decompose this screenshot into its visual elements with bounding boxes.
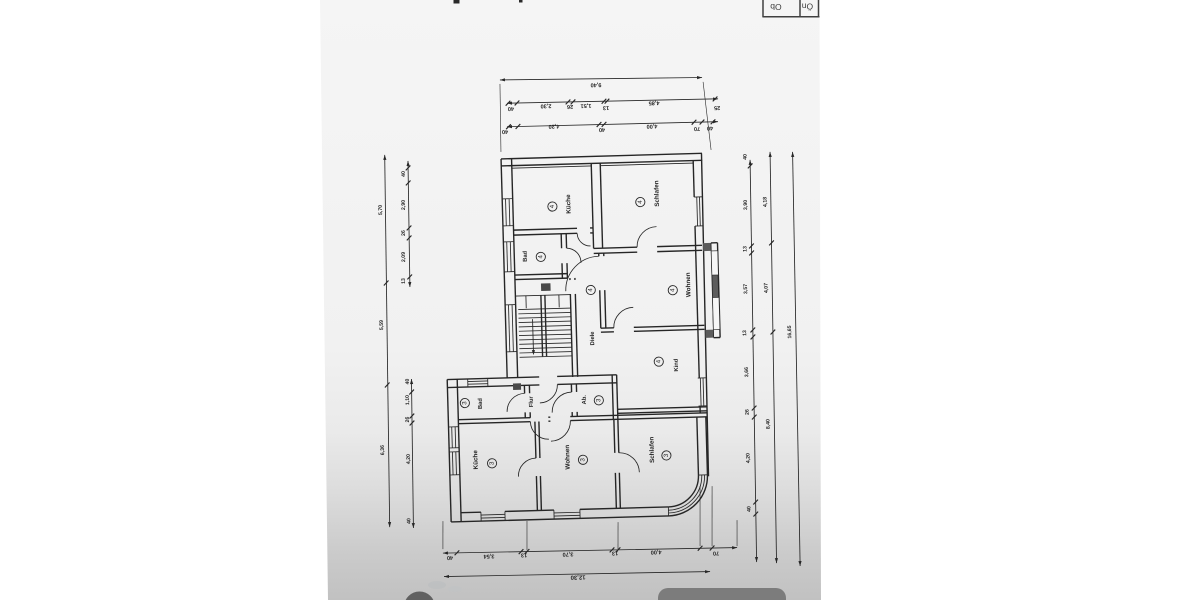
svg-text:Küche: Küche <box>472 450 480 470</box>
svg-text:4,20: 4,20 <box>745 453 751 463</box>
svg-text:5,59: 5,59 <box>379 320 385 330</box>
svg-text:2,90: 2,90 <box>401 200 407 210</box>
svg-text:4,18: 4,18 <box>762 197 768 207</box>
svg-text:40: 40 <box>401 171 407 177</box>
svg-text:13: 13 <box>401 278 407 284</box>
svg-text:13: 13 <box>612 550 618 556</box>
svg-text:13: 13 <box>742 330 748 336</box>
svg-text:8,40: 8,40 <box>765 419 771 429</box>
svg-text:16,65: 16,65 <box>787 325 793 338</box>
svg-text:Ab.: Ab. <box>582 395 588 405</box>
svg-text:40: 40 <box>447 554 453 560</box>
svg-text:Bad: Bad <box>523 250 529 262</box>
svg-text:4,85: 4,85 <box>649 99 660 105</box>
svg-text:Diele: Diele <box>590 331 596 346</box>
svg-text:40: 40 <box>746 506 752 512</box>
svg-text:26: 26 <box>567 103 573 109</box>
svg-text:70: 70 <box>713 550 719 556</box>
svg-text:Küche: Küche <box>565 194 573 214</box>
svg-text:Ön: Ön <box>802 2 814 12</box>
svg-text:4,07: 4,07 <box>763 283 769 293</box>
svg-text:Schlafen: Schlafen <box>653 180 661 207</box>
svg-text:26: 26 <box>405 416 411 422</box>
svg-text:4,00: 4,00 <box>651 548 662 554</box>
svg-text:6,36: 6,36 <box>380 445 386 455</box>
svg-text:26: 26 <box>401 230 407 236</box>
svg-text:40: 40 <box>405 378 411 384</box>
svg-text:2,09: 2,09 <box>401 252 407 262</box>
svg-text:4,00: 4,00 <box>646 123 657 129</box>
svg-text:3,70: 3,70 <box>562 550 573 556</box>
svg-text:Ob: Ob <box>770 2 782 12</box>
svg-text:26: 26 <box>745 409 751 415</box>
svg-text:40: 40 <box>406 518 412 524</box>
svg-text:12,30: 12,30 <box>570 573 586 579</box>
svg-text:40: 40 <box>743 154 749 160</box>
svg-text:13: 13 <box>742 246 748 252</box>
svg-text:40: 40 <box>599 126 605 132</box>
svg-text:9,40: 9,40 <box>590 81 601 87</box>
svg-text:3,54: 3,54 <box>483 552 495 558</box>
svg-text:Wohnen: Wohnen <box>685 272 693 297</box>
svg-text:Wohnen: Wohnen <box>564 445 572 470</box>
svg-text:3,66: 3,66 <box>744 367 750 377</box>
svg-text:40: 40 <box>508 105 514 111</box>
svg-text:13: 13 <box>603 104 609 110</box>
svg-text:Bad: Bad <box>478 398 484 410</box>
svg-text:Schlafen: Schlafen <box>648 436 656 463</box>
svg-text:4,20: 4,20 <box>548 123 559 129</box>
svg-text:1,51: 1,51 <box>580 102 591 108</box>
svg-text:Kind: Kind <box>674 358 680 372</box>
svg-text:Flur: Flur <box>529 395 535 407</box>
svg-text:70: 70 <box>694 125 700 131</box>
svg-text:1,10: 1,10 <box>405 395 411 405</box>
svg-text:13: 13 <box>521 551 527 557</box>
svg-text:40: 40 <box>502 128 508 134</box>
svg-text:5,70: 5,70 <box>378 205 384 215</box>
svg-text:25: 25 <box>714 104 720 110</box>
svg-text:40: 40 <box>707 125 713 131</box>
svg-text:3,90: 3,90 <box>743 200 749 210</box>
svg-text:3,57: 3,57 <box>743 284 749 294</box>
svg-text:2,30: 2,30 <box>540 102 551 108</box>
svg-text:4,20: 4,20 <box>406 454 412 464</box>
